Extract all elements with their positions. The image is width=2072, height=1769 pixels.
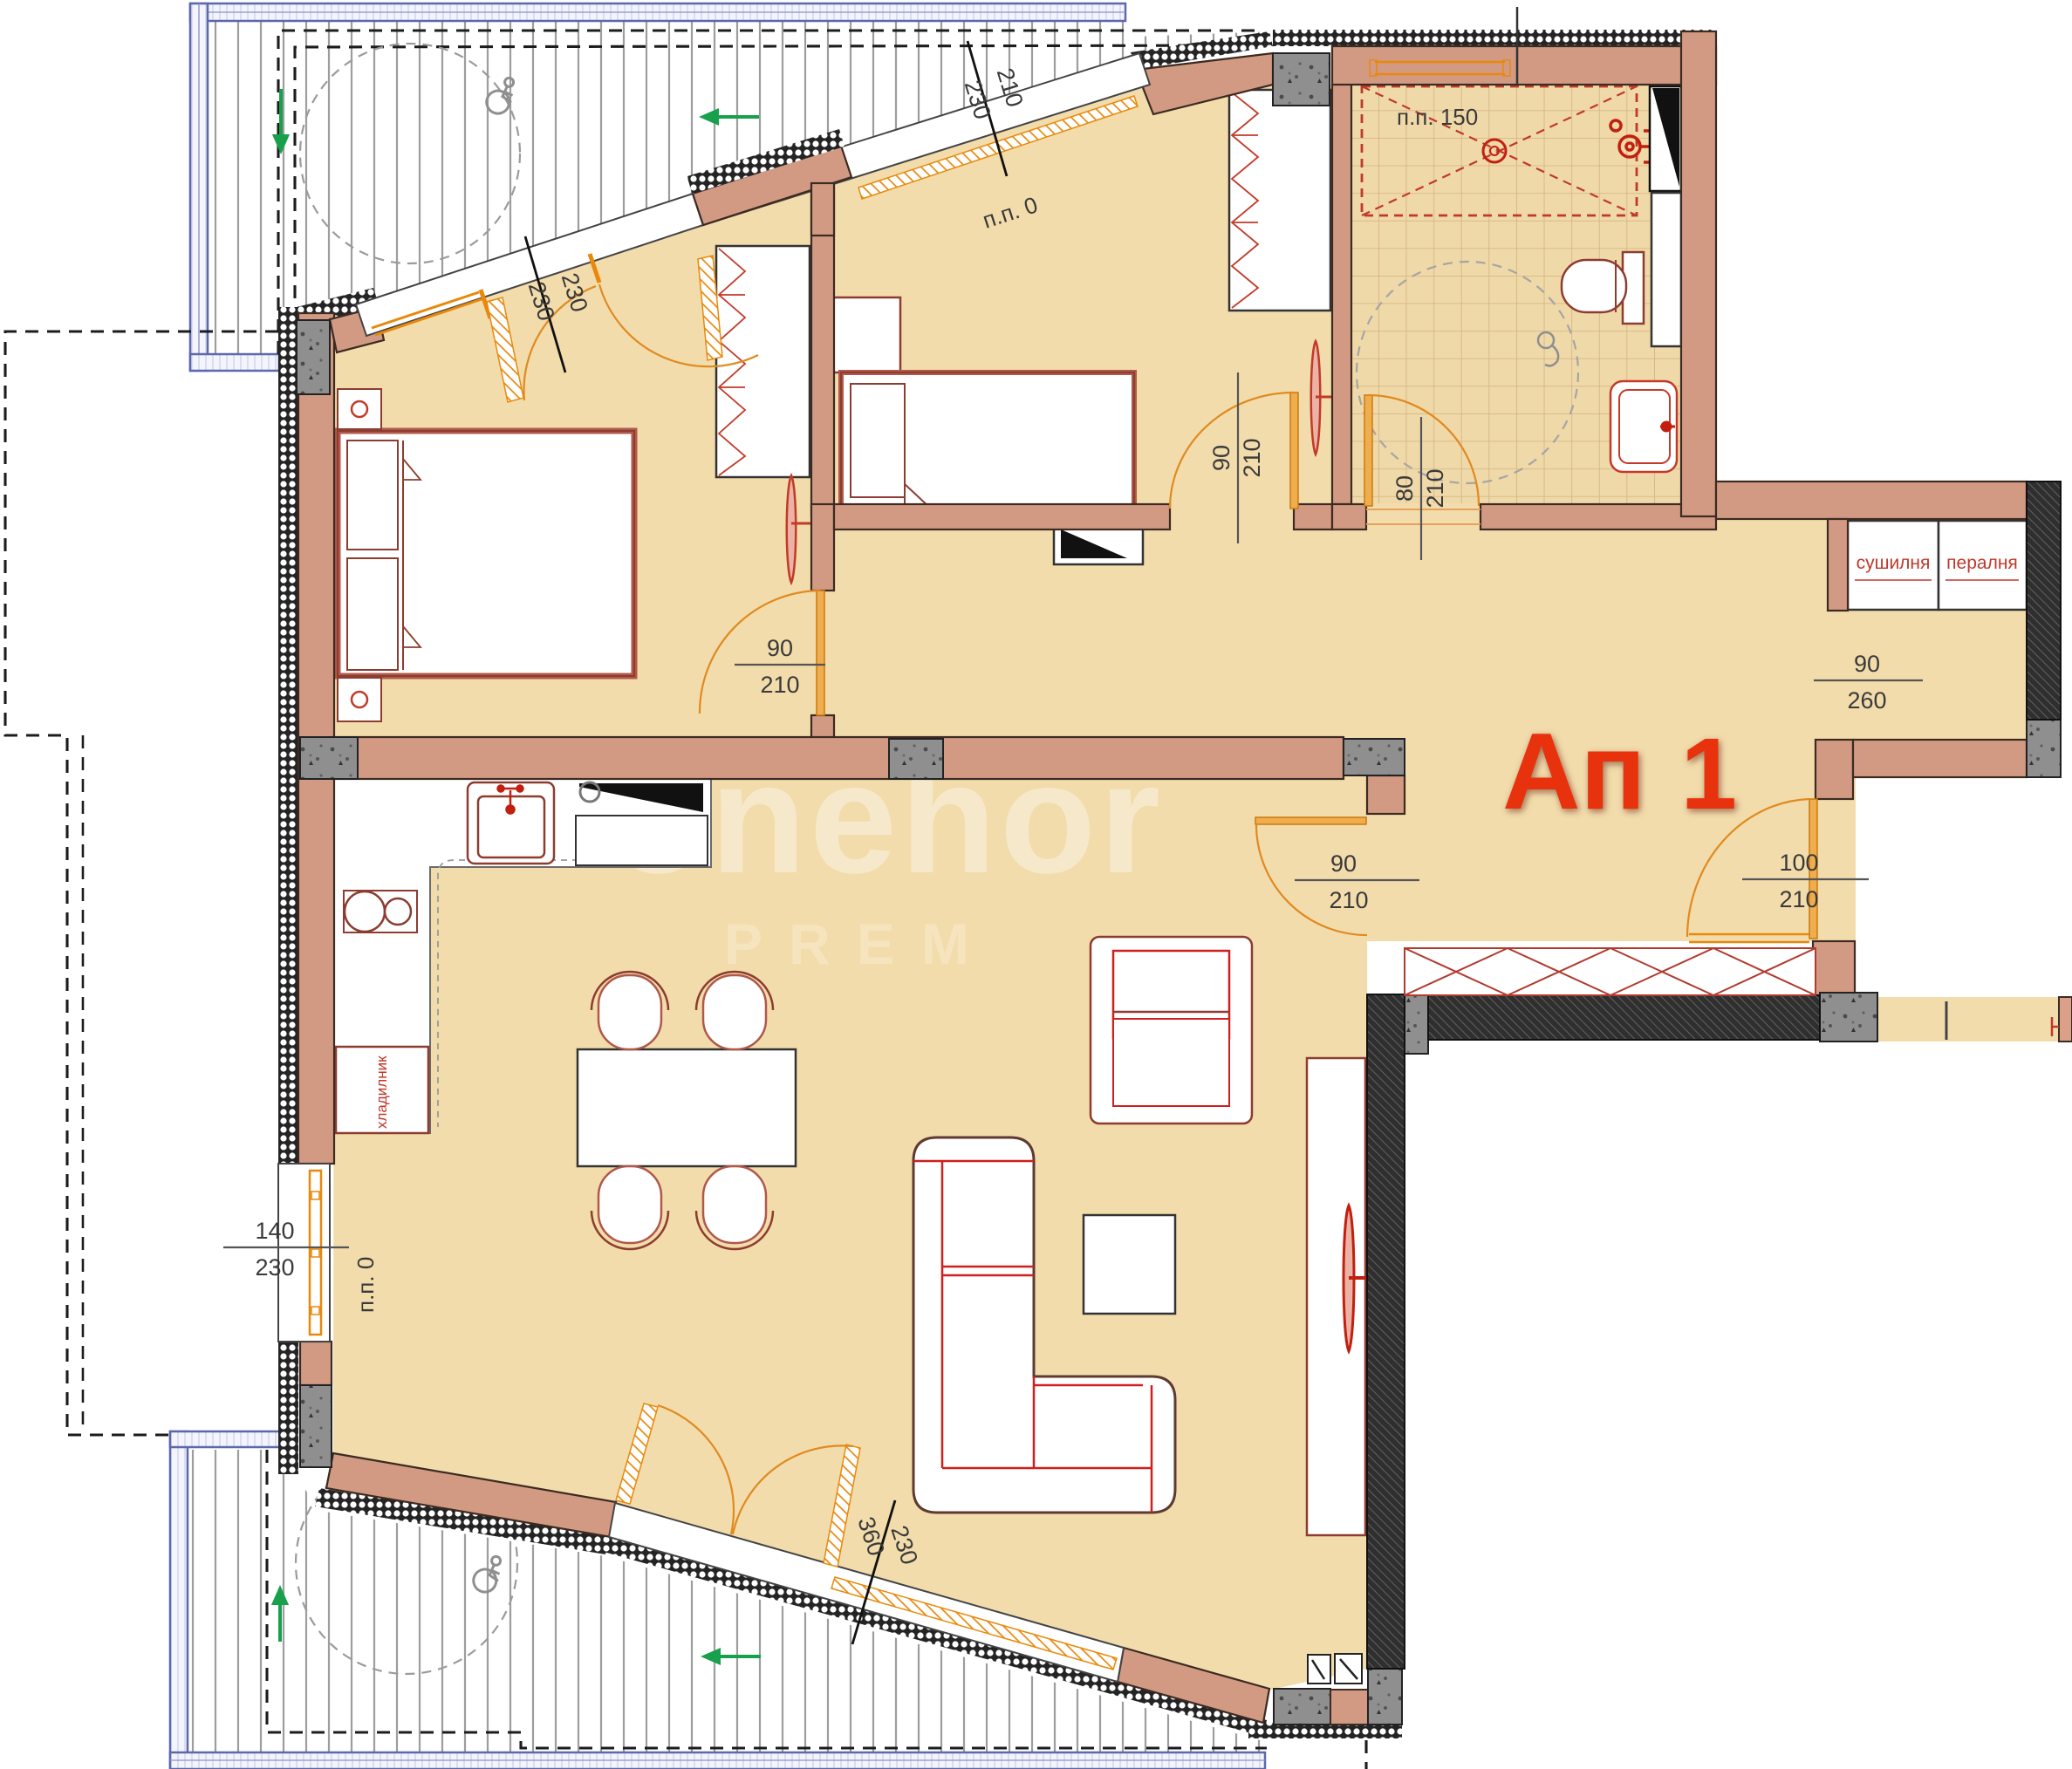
svg-text:п.п. 0: п.п. 0 bbox=[352, 1257, 379, 1313]
svg-text:210: 210 bbox=[1239, 438, 1265, 477]
svg-text:230: 230 bbox=[255, 1254, 294, 1281]
svg-text:хладилник: хладилник bbox=[373, 1055, 390, 1129]
svg-text:210: 210 bbox=[1329, 887, 1368, 913]
svg-text:PREM: PREM bbox=[724, 912, 995, 976]
svg-text:210: 210 bbox=[1422, 468, 1448, 508]
svg-text:80: 80 bbox=[1392, 475, 1418, 502]
svg-text:пералня: пералня bbox=[1946, 553, 2018, 573]
svg-text:90: 90 bbox=[1330, 850, 1357, 877]
svg-text:140: 140 bbox=[255, 1218, 294, 1244]
svg-text:90: 90 bbox=[1208, 445, 1234, 471]
svg-text:210: 210 bbox=[1779, 886, 1818, 912]
svg-text:п.п. 150: п.п. 150 bbox=[1397, 104, 1478, 130]
svg-text:260: 260 bbox=[1847, 687, 1886, 714]
svg-text:Ап1: Ап1 bbox=[1502, 712, 1737, 832]
svg-text:100: 100 bbox=[1779, 850, 1818, 876]
svg-text:90: 90 bbox=[1854, 651, 1880, 677]
svg-text:сушилня: сушилня bbox=[1857, 553, 1931, 573]
svg-text:210: 210 bbox=[760, 672, 799, 698]
svg-text:90: 90 bbox=[767, 635, 793, 661]
